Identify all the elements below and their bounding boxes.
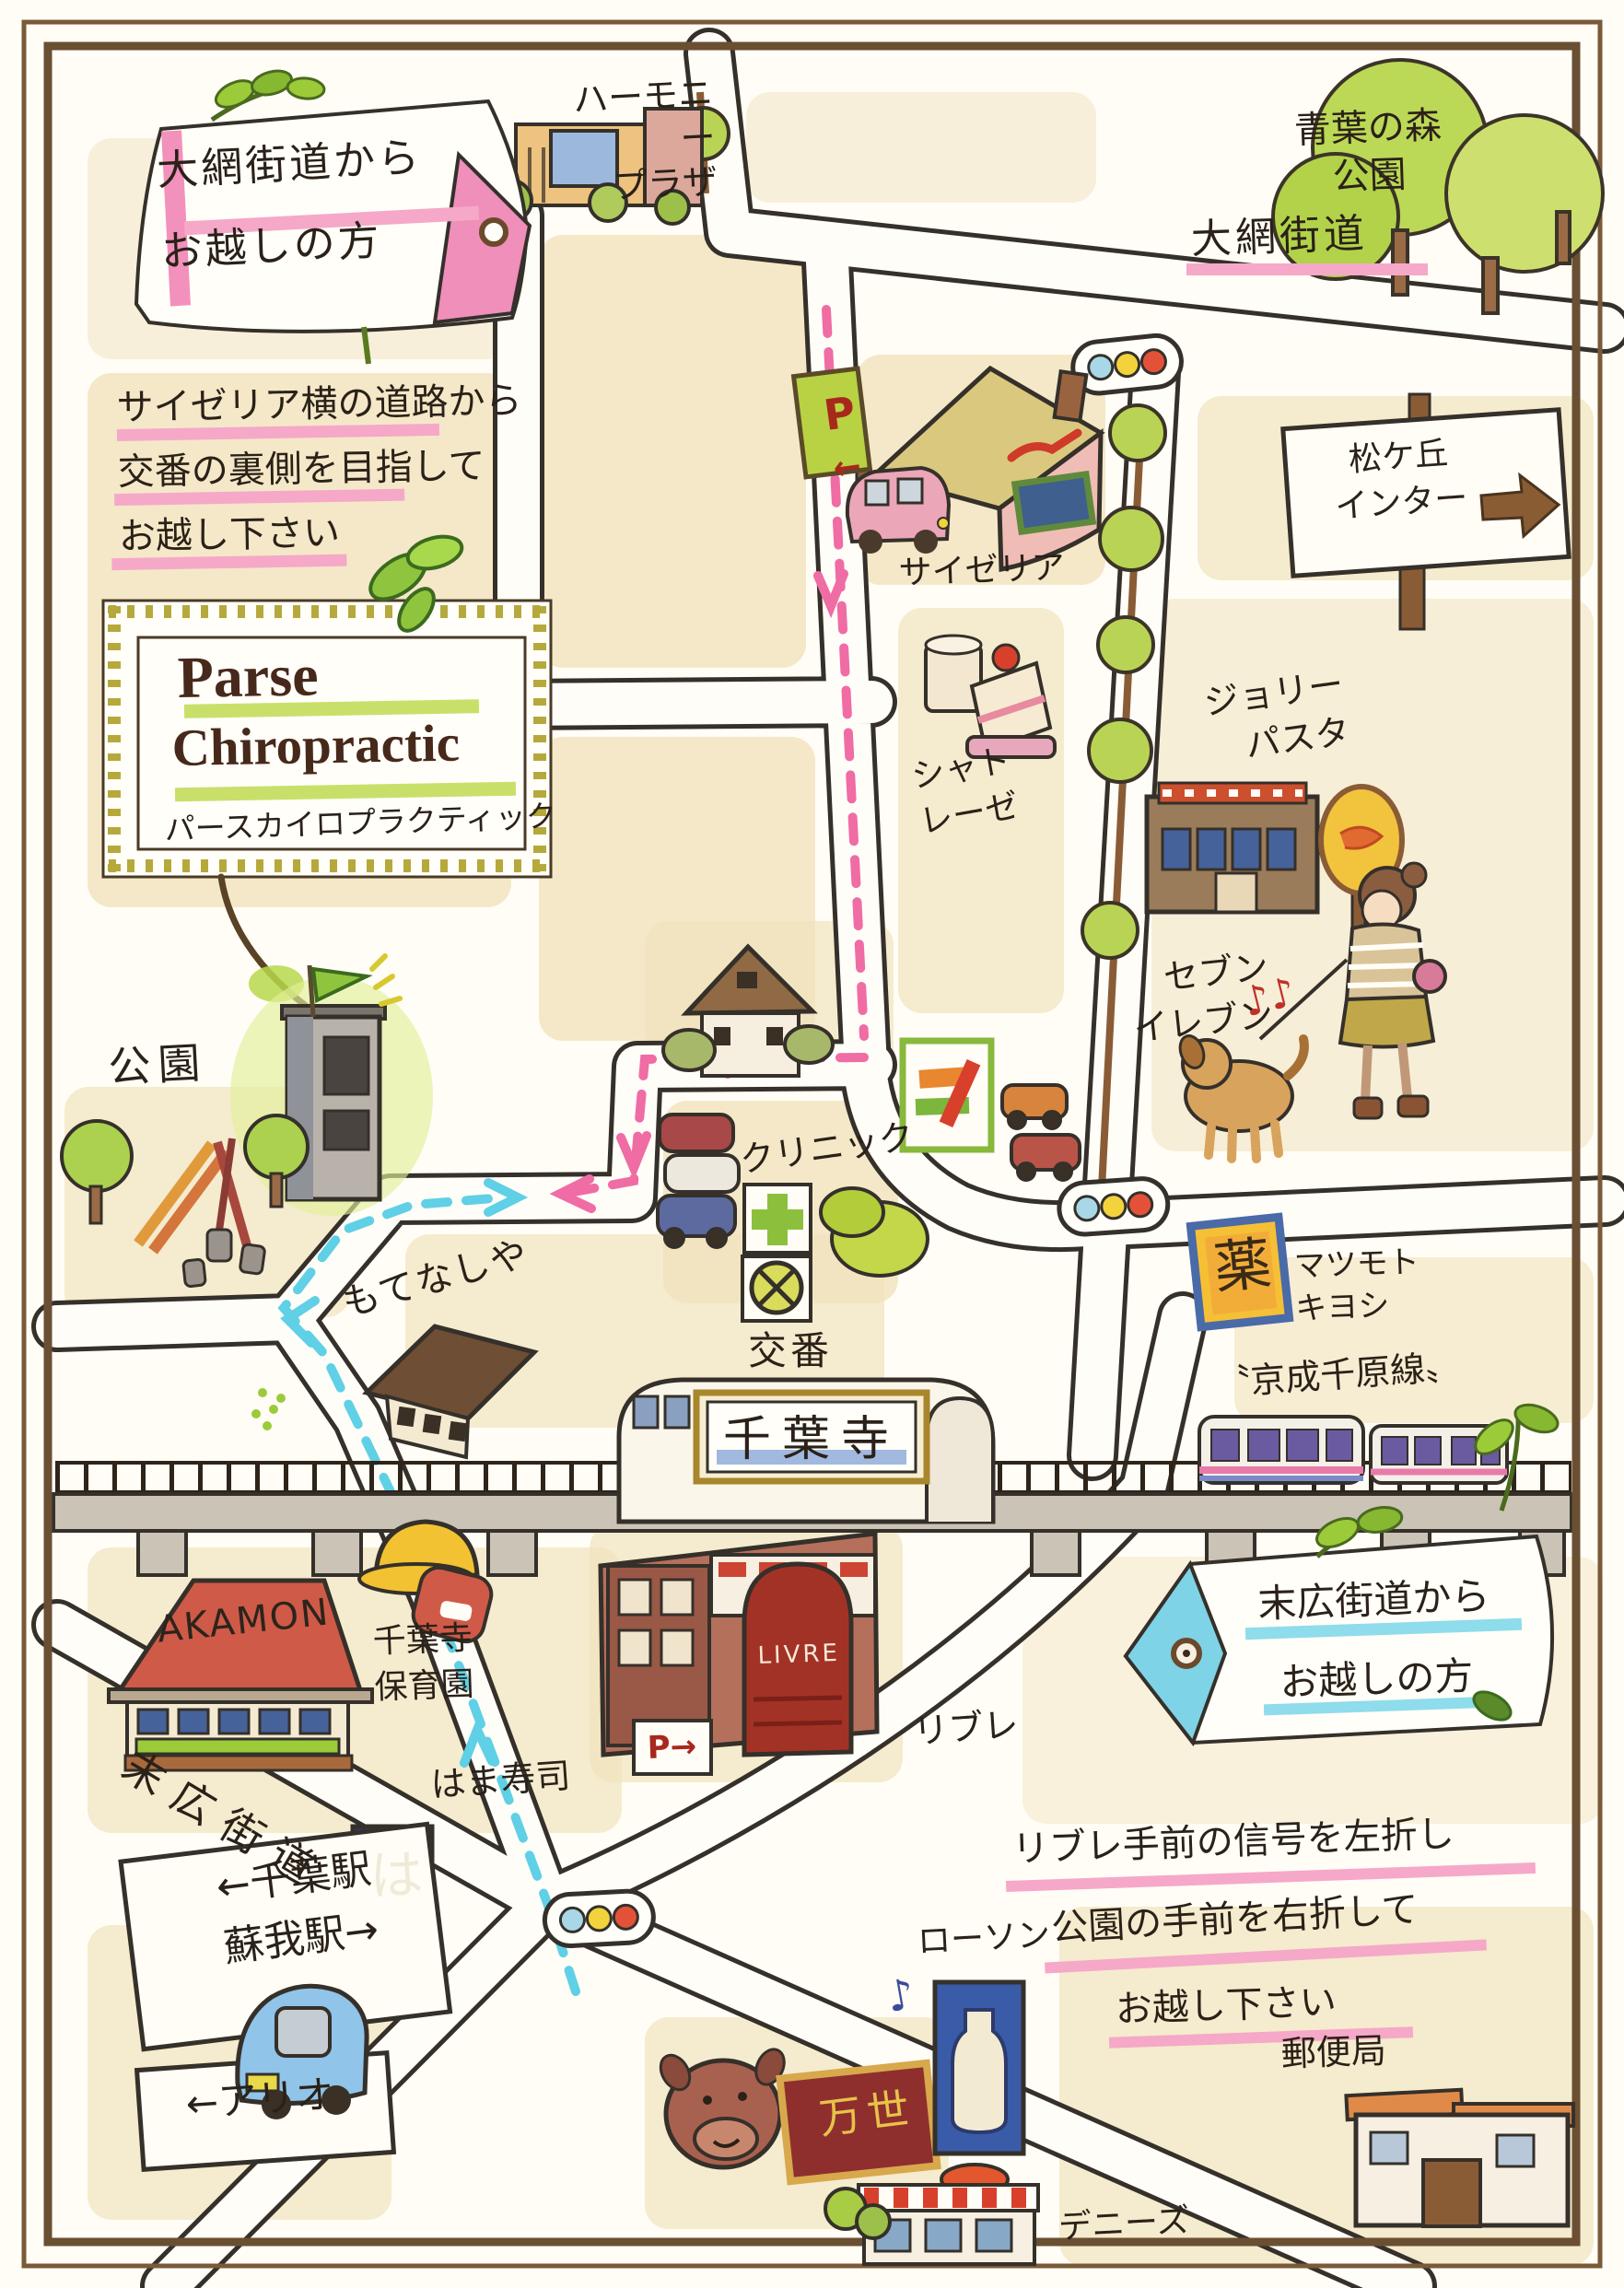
label-koban: 交番 [748,1326,833,1377]
lawson-sign [935,1982,1023,2154]
label-saizeriya: サイゼリア [898,547,1066,596]
hand-drawn-access-map: 大網街道から お越しの方 サイゼリア横の道路から 交番の裏側を目指して お越し下… [0,0,1624,2288]
sign-ario-text: ←アリオ [184,2070,336,2130]
manse-sign-text: 万世 [816,2081,918,2147]
label-hoikuen: 千葉寺 保育園 [372,1616,474,1711]
label-dennys: デニーズ [1057,2200,1190,2250]
p-letter: P [812,388,866,438]
label-park: 公園 [107,1035,209,1095]
p-left-arrow-icon: ← [821,448,873,489]
logo-name-en1: Parse [177,636,319,716]
label-aoba-park: 青葉の森 公園 [1293,101,1444,203]
tag-suehiro-text: 末広街道から お越しの方 [1225,1556,1525,1724]
label-matsumoto-kiyoshi: マツモト キヨシ [1293,1241,1421,1330]
label-harmony-plaza: ハーモニー プラザ [551,71,719,212]
label-livre: リブレ [912,1702,1020,1755]
post-office-building [1346,2090,1573,2226]
parked-cars [658,1115,739,1247]
sign-matsugaoka-text: 松ケ丘 インター [1312,428,1489,532]
note-oami-text: サイゼリア横の道路から 交番の裏側を目指して お越し下さい [116,368,525,569]
train-icon [1199,1417,1507,1483]
livre-logo-text: LIVRE [757,1639,841,1673]
tag-oami-text: 大網街道から お越しの方 [155,117,428,293]
label-chateraise: シャト レーゼ [908,738,1022,846]
sign-livre-parking: P→ [647,1726,697,1769]
label-oami-road: 大網街道 [1190,207,1369,266]
sign-yakkyoku-text: 薬 [1210,1227,1275,1307]
label-lawson: ローソン [917,1914,1051,1964]
label-hamazushi: はま寿司 [429,1753,572,1808]
note-suehiro-line3: お越し下さい [1115,1979,1338,2034]
station-sign-text: 千葉寺 [709,1409,914,1472]
label-post-office: 郵便局 [1280,2028,1387,2077]
logo-name-en2: Chiropractic [171,710,461,784]
